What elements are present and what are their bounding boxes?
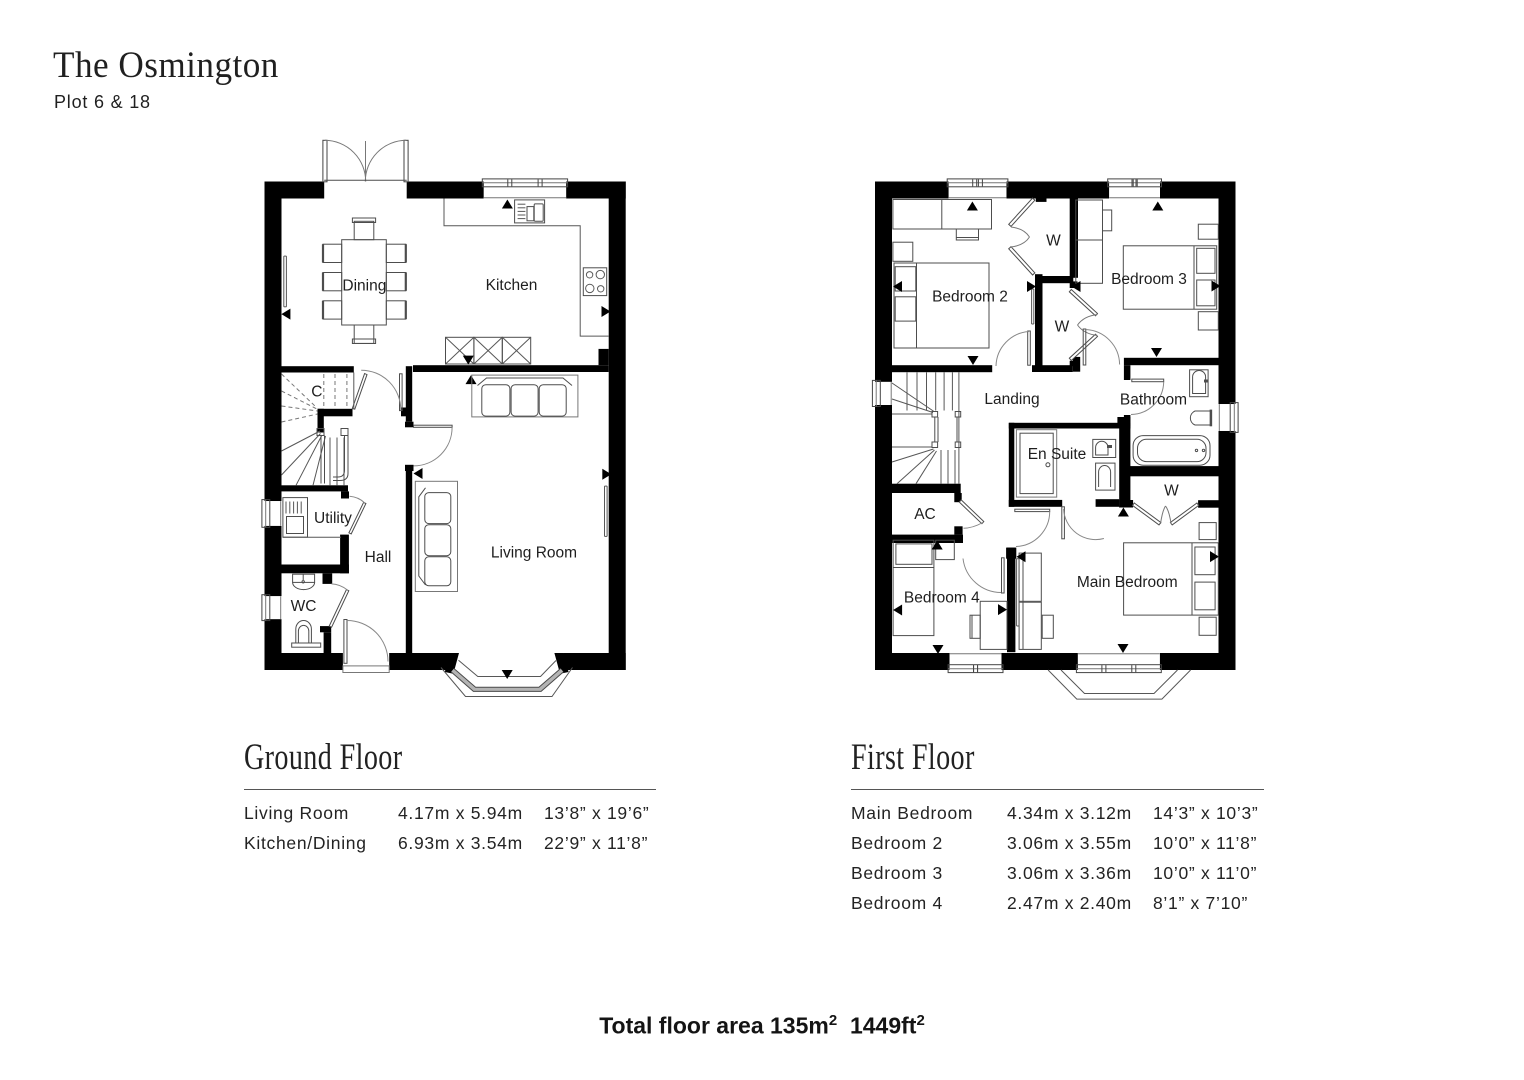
svg-text:Bedroom 3: Bedroom 3 [1111, 271, 1187, 288]
svg-text:Utility: Utility [314, 510, 352, 527]
svg-text:Bathroom: Bathroom [1120, 392, 1187, 409]
svg-text:C: C [311, 384, 322, 401]
svg-text:W: W [1164, 483, 1179, 500]
svg-text:Bedroom 2: Bedroom 2 [932, 289, 1008, 306]
svg-text:AC: AC [914, 506, 936, 523]
svg-text:W: W [1046, 233, 1061, 250]
svg-text:WC: WC [291, 598, 317, 615]
svg-text:En Suite: En Suite [1028, 446, 1087, 463]
svg-text:W: W [1055, 319, 1070, 336]
svg-text:Bedroom 4: Bedroom 4 [904, 590, 980, 607]
svg-text:Kitchen: Kitchen [486, 277, 538, 294]
svg-text:Living Room: Living Room [491, 545, 577, 562]
svg-text:Landing: Landing [984, 391, 1039, 408]
svg-text:Dining: Dining [342, 278, 386, 295]
svg-text:Hall: Hall [365, 549, 392, 566]
svg-text:Main Bedroom: Main Bedroom [1077, 574, 1178, 591]
